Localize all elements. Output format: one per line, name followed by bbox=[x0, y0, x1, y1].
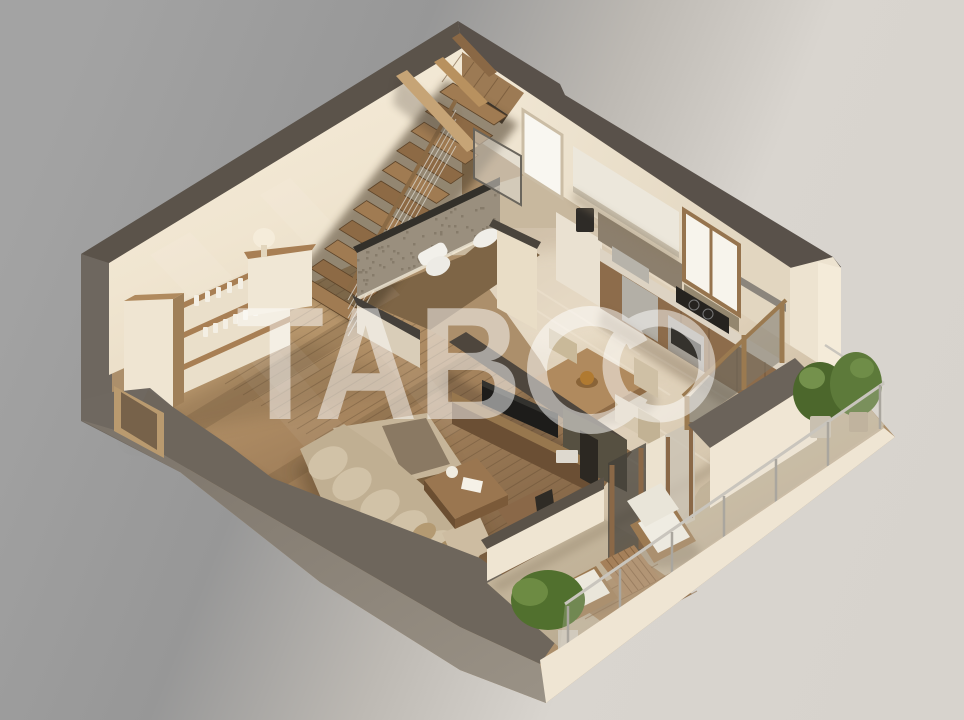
svg-text:TAB: TAB bbox=[236, 274, 522, 454]
